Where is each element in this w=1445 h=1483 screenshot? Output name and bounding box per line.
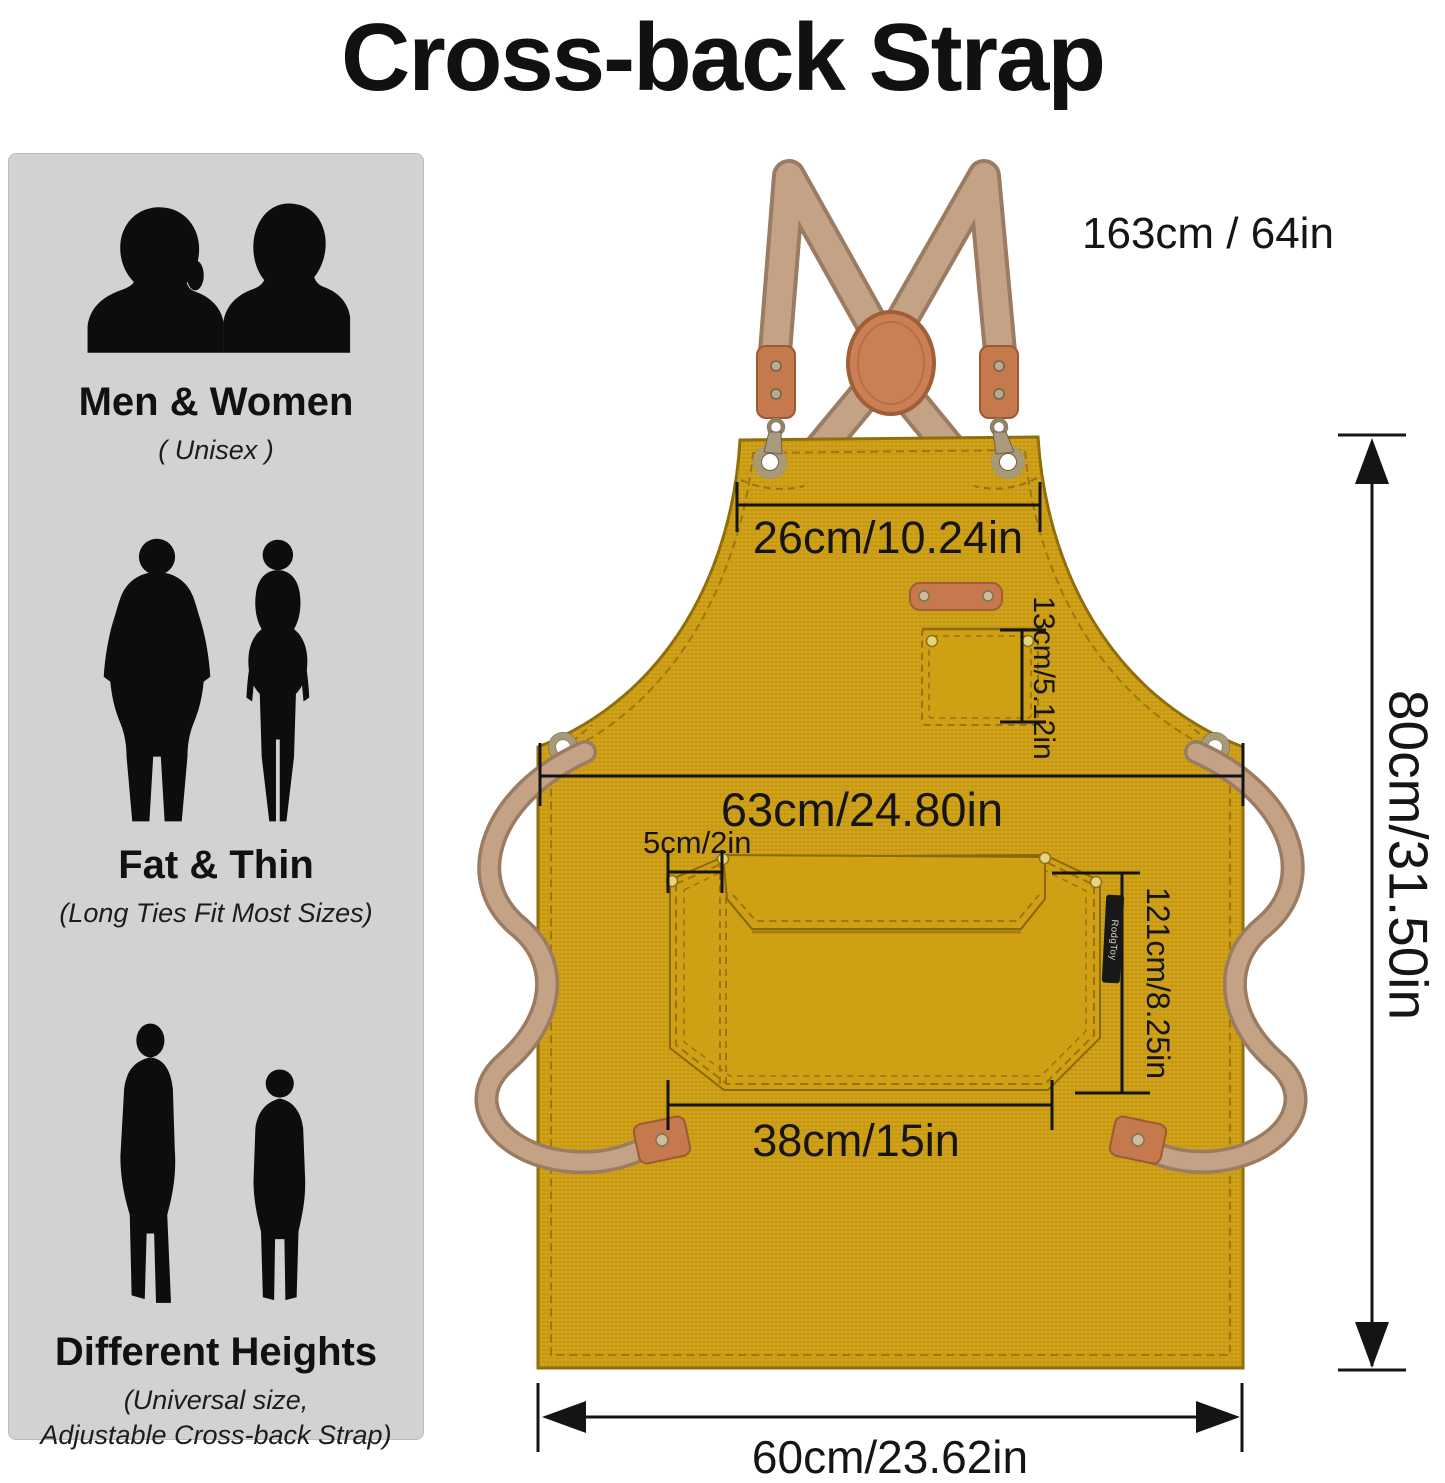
bottom-width-label: 60cm/23.62in <box>752 1434 1028 1480</box>
features-sidebar: Men & Women ( Unisex ) Fat & Thin (Long … <box>8 153 424 1440</box>
men-women-silhouette-icon <box>9 196 423 366</box>
fat-thin-silhouette-icon <box>9 534 423 829</box>
page-title: Cross-back Strap <box>341 10 1104 106</box>
front-pocket <box>667 853 1102 1091</box>
brand-leather-patch <box>910 583 1002 610</box>
product-infographic: Cross-back Strap Men & Women ( Unisex ) <box>0 0 1445 1483</box>
bib-width-label: 26cm/10.24in <box>753 515 1023 560</box>
feature-subtitle: ( Unisex ) <box>9 435 423 466</box>
brand-tag-text: RodgToy <box>1105 896 1122 985</box>
feature-title: Different Heights <box>9 1330 423 1375</box>
front-pocket-flap <box>723 855 1045 929</box>
feature-subtitle: (Long Ties Fit Most Sizes) <box>9 898 423 929</box>
feature-subtitle-2: Adjustable Cross-back Strap) <box>9 1420 423 1451</box>
front-pocket-width-label: 38cm/15in <box>752 1118 960 1163</box>
feature-title: Fat & Thin <box>9 843 423 888</box>
feature-title: Men & Women <box>9 380 423 425</box>
front-pocket-height-label: 121cm/8.25in <box>1142 887 1174 1079</box>
apron-height-label: 80cm/31.50in <box>1381 690 1436 1020</box>
strap-length-label: 163cm / 64in <box>1082 212 1334 256</box>
feature-unisex: Men & Women ( Unisex ) <box>9 196 423 466</box>
pocket-slot-width-label: 5cm/2in <box>643 827 752 858</box>
strap-leather-disc <box>848 312 934 414</box>
waist-width-label: 63cm/24.80in <box>721 786 1003 833</box>
different-heights-silhouette-icon <box>9 1016 423 1316</box>
feature-sizes: Fat & Thin (Long Ties Fit Most Sizes) <box>9 534 423 929</box>
chest-pocket-height-label: 13cm/5.12in <box>1028 596 1058 759</box>
cross-back-straps <box>775 176 1000 456</box>
feature-heights: Different Heights (Universal size, Adjus… <box>9 1016 423 1451</box>
feature-subtitle: (Universal size, <box>9 1385 423 1416</box>
